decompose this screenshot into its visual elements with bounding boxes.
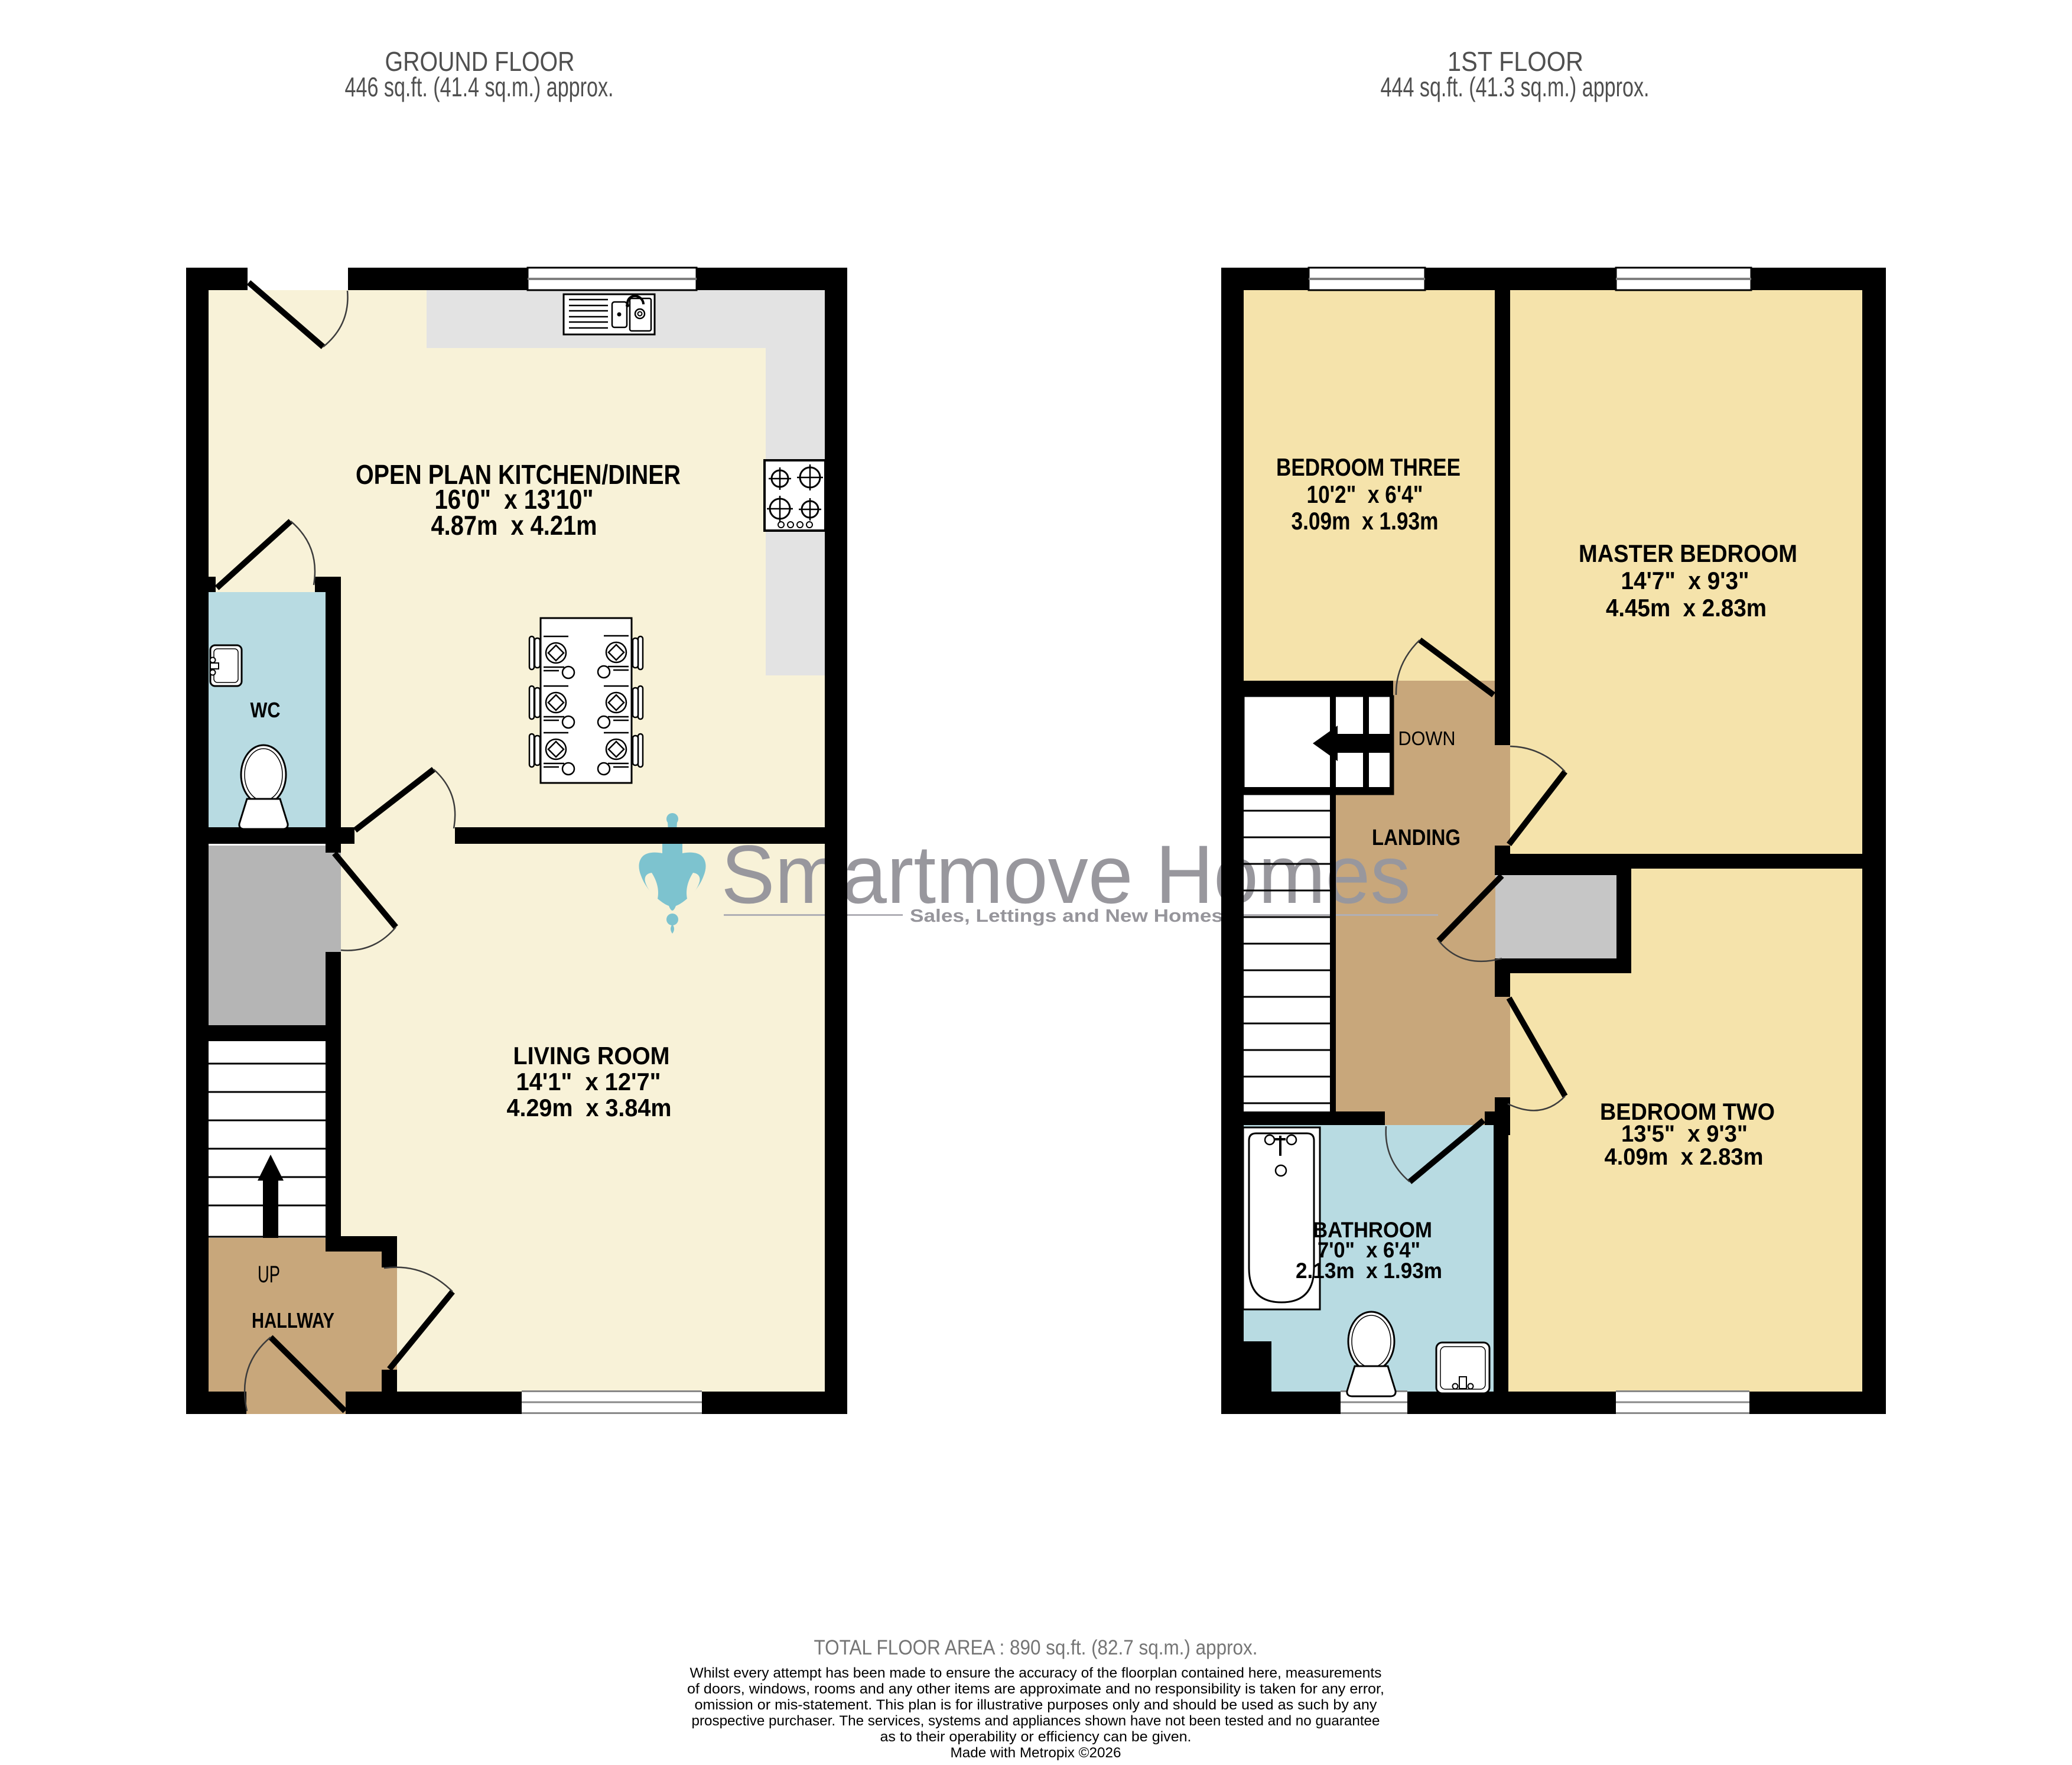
svg-text:446 sq.ft. (41.4 sq.m.) approx: 446 sq.ft. (41.4 sq.m.) approx.: [345, 71, 614, 102]
svg-text:as to their operability or eff: as to their operability or efficiency ca…: [880, 1729, 1192, 1745]
svg-text:4.29m x 3.84m: 4.29m x 3.84m: [507, 1094, 672, 1122]
svg-text:HALLWAY: HALLWAY: [252, 1308, 334, 1332]
svg-text:10'2" x 6'4": 10'2" x 6'4": [1307, 480, 1423, 508]
svg-text:Sales, Lettings and New Homes: Sales, Lettings and New Homes: [910, 905, 1223, 926]
svg-text:444 sq.ft. (41.3 sq.m.) approx: 444 sq.ft. (41.3 sq.m.) approx.: [1381, 71, 1650, 102]
svg-text:prospective purchaser. The ser: prospective purchaser. The services, sys…: [692, 1713, 1380, 1729]
svg-text:4.45m x 2.83m: 4.45m x 2.83m: [1606, 594, 1767, 622]
svg-text:LIVING ROOM: LIVING ROOM: [513, 1042, 670, 1070]
svg-text:2.13m x 1.93m: 2.13m x 1.93m: [1296, 1259, 1442, 1283]
svg-text:4.09m x 2.83m: 4.09m x 2.83m: [1605, 1144, 1764, 1170]
svg-text:UP: UP: [258, 1262, 280, 1288]
svg-text:14'1" x 12'7": 14'1" x 12'7": [516, 1068, 661, 1096]
svg-text:LANDING: LANDING: [1372, 825, 1461, 850]
svg-text:MASTER BEDROOM: MASTER BEDROOM: [1579, 539, 1797, 567]
svg-text:BEDROOM THREE: BEDROOM THREE: [1276, 453, 1461, 481]
svg-text:of doors, windows, rooms and a: of doors, windows, rooms and any other i…: [687, 1681, 1384, 1697]
svg-text:13'5" x 9'3": 13'5" x 9'3": [1621, 1121, 1748, 1147]
svg-text:Made with Metropix ©2026: Made with Metropix ©2026: [951, 1745, 1121, 1761]
svg-text:WC: WC: [251, 698, 281, 722]
svg-text:omission or mis-statement. Thi: omission or mis-statement. This plan is …: [695, 1697, 1377, 1713]
svg-text:14'7" x 9'3": 14'7" x 9'3": [1621, 567, 1749, 594]
svg-text:DOWN: DOWN: [1398, 727, 1456, 749]
svg-text:TOTAL FLOOR AREA : 890 sq.ft.: TOTAL FLOOR AREA : 890 sq.ft. (82.7 sq.m…: [814, 1636, 1258, 1659]
svg-text:4.87m x 4.21m: 4.87m x 4.21m: [431, 510, 597, 541]
svg-text:3.09m x 1.93m: 3.09m x 1.93m: [1292, 507, 1439, 535]
svg-text:Whilst every attempt has been: Whilst every attempt has been made to en…: [690, 1665, 1382, 1681]
